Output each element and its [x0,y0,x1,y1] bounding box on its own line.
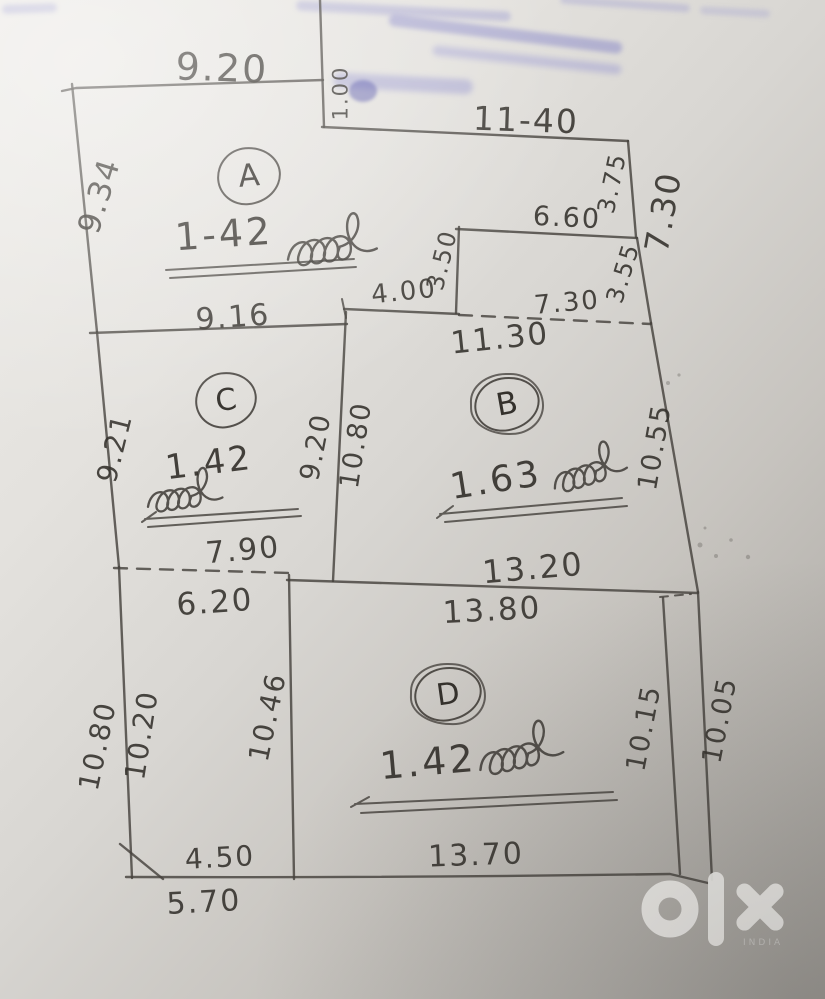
dim-b-top: 11-40 [473,102,580,139]
corner-dash [660,594,691,597]
plot-d-right-inner-1015 [663,598,680,874]
olx-country-label: INDIA [743,938,783,948]
plot-a-cents-squiggle [288,213,377,265]
sketch-linework [0,0,825,999]
plot-b-circle: B [470,372,544,437]
plot-a-letter: A [237,157,261,195]
plot-a-value: 1-42 [174,212,275,257]
dim-a-bottom: 9.16 [195,300,272,335]
dim-e-bottom-inner: 4.50 [184,842,256,874]
olx-o-glyph [650,889,690,929]
dim-inner-400: 4.00 [370,276,438,309]
plot-c-value: 1.42 [163,441,254,485]
plot-c-underline [142,509,301,527]
plot-b-cents-squiggle [549,438,629,493]
olx-bar-glyph [708,872,724,946]
plot-c-bottom-dashed-790 [114,568,291,573]
dim-d-bottom: 13.70 [428,839,525,872]
plot-d-value: 1.42 [378,739,478,785]
dim-d-top: 13.80 [442,593,542,629]
plot-c-letter: C [213,381,239,419]
olx-watermark: INDIA [615,852,815,982]
dim-c-bottom: 7.90 [204,533,281,569]
boundary-top-extension-line [320,0,324,127]
dim-dash-730: 7.30 [533,287,601,319]
olx-x-glyph [733,880,787,934]
plot-d-cents-squiggle [477,719,565,775]
dim-e-top: 6.20 [175,585,254,621]
divider-d-left-1046 [289,575,294,879]
plot-b-letter: B [493,384,520,423]
dim-notch-top: 6.60 [532,203,601,234]
dim-e-bottom-outer: 5.70 [166,886,242,920]
plot-d-circle: D [411,663,486,726]
dim-step: 1.00 [331,66,352,121]
dim-a-top: 9.20 [175,47,269,88]
ink-smudge-dots [666,373,750,559]
photo-canvas: 9.20 1.00 11-40 3.75 7.30 6.60 3.50 3.55… [0,0,825,999]
corner-slash [120,844,163,879]
olx-logo [615,852,815,982]
dim-b-bottom: 13.20 [481,548,585,589]
plot-b-inner-top-400 [344,309,459,314]
plot-d-underline [351,792,617,813]
plot-d-letter: D [434,675,462,713]
